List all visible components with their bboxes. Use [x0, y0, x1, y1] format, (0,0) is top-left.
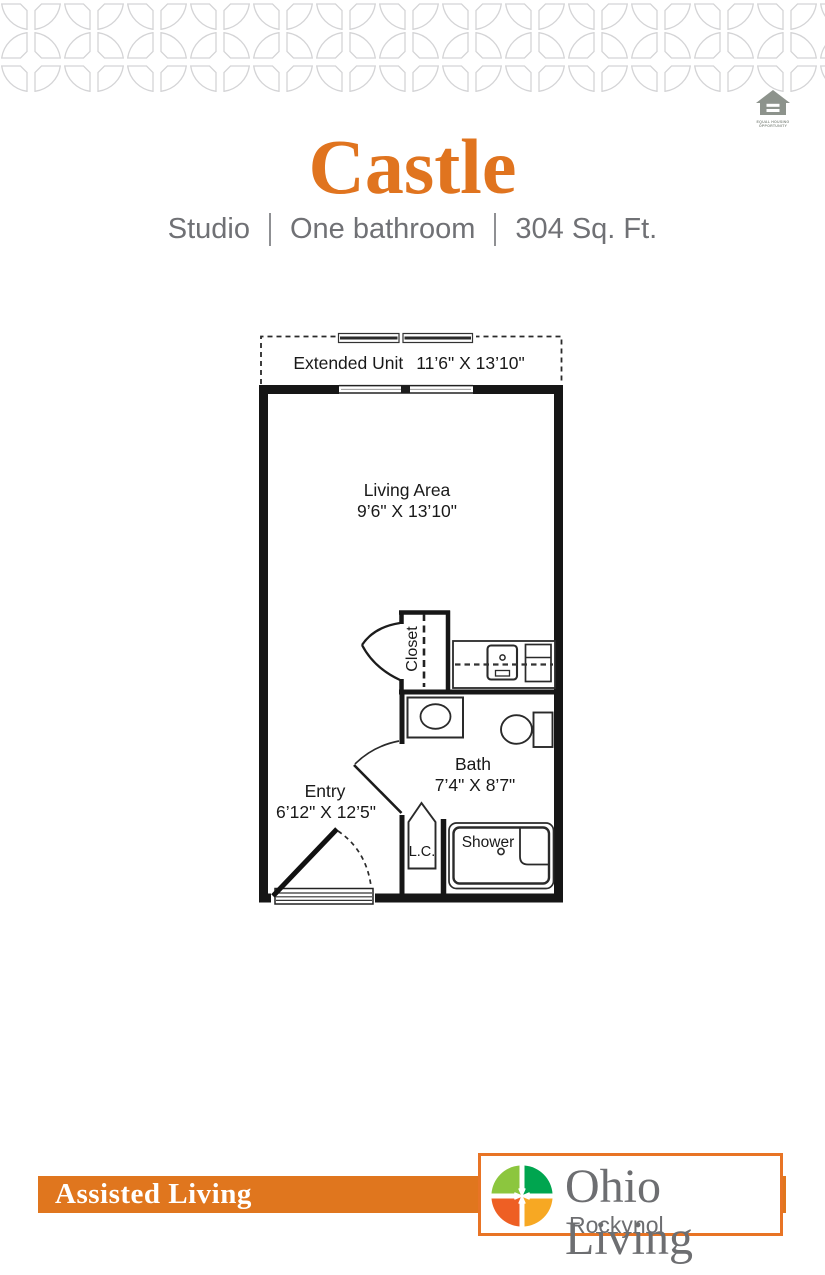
- shower-pan: [449, 823, 554, 889]
- toilet-bowl: [501, 715, 532, 744]
- bath-label: Bath: [455, 754, 491, 774]
- ohio-living-logo-box: Ohio Living Rockynol: [478, 1153, 783, 1236]
- bath-vanity: [408, 698, 464, 738]
- shower-label: Shower: [462, 834, 515, 851]
- equal-housing-house-icon: [756, 90, 790, 115]
- entry-label: Entry: [305, 781, 346, 801]
- ohio-living-logo-icon: [489, 1163, 555, 1229]
- toilet-tank: [534, 713, 553, 748]
- subtitle-divider: [494, 213, 496, 246]
- vanity-sink: [421, 704, 451, 729]
- unit-area: 304 Sq. Ft.: [515, 212, 657, 246]
- flyer-page: EQUAL HOUSING OPPORTUNITY Castle Studio …: [0, 0, 825, 1275]
- extended-unit-window: [336, 331, 476, 343]
- closet-label: Closet: [404, 626, 421, 672]
- extended-unit-label: Extended Unit11’6" X 13’10": [293, 353, 524, 373]
- living-area-dims: 9’6" X 13’10": [357, 501, 457, 521]
- assisted-living-label: Assisted Living: [55, 1178, 252, 1211]
- lc-label: L.C.: [409, 844, 436, 860]
- subtitle-divider: [269, 213, 271, 246]
- community-name: Rockynol: [569, 1213, 664, 1238]
- equal-housing-logo: EQUAL HOUSING OPPORTUNITY: [752, 90, 794, 128]
- entry-dims: 6’12" X 12’5": [276, 802, 376, 822]
- decorative-pattern-band: [0, 0, 825, 96]
- floor-plan: Extended Unit11’6" X 13’10" Living Area …: [252, 326, 572, 911]
- kitchenette-counter: [453, 641, 555, 688]
- bath-dims: 7’4" X 8’7": [435, 775, 516, 795]
- living-area-label: Living Area: [364, 480, 451, 500]
- unit-bathrooms: One bathroom: [290, 212, 475, 246]
- living-area-window: [339, 385, 473, 395]
- page-title: Castle: [0, 127, 825, 207]
- unit-type: Studio: [168, 212, 250, 246]
- unit-summary: Studio One bathroom 304 Sq. Ft.: [0, 212, 825, 246]
